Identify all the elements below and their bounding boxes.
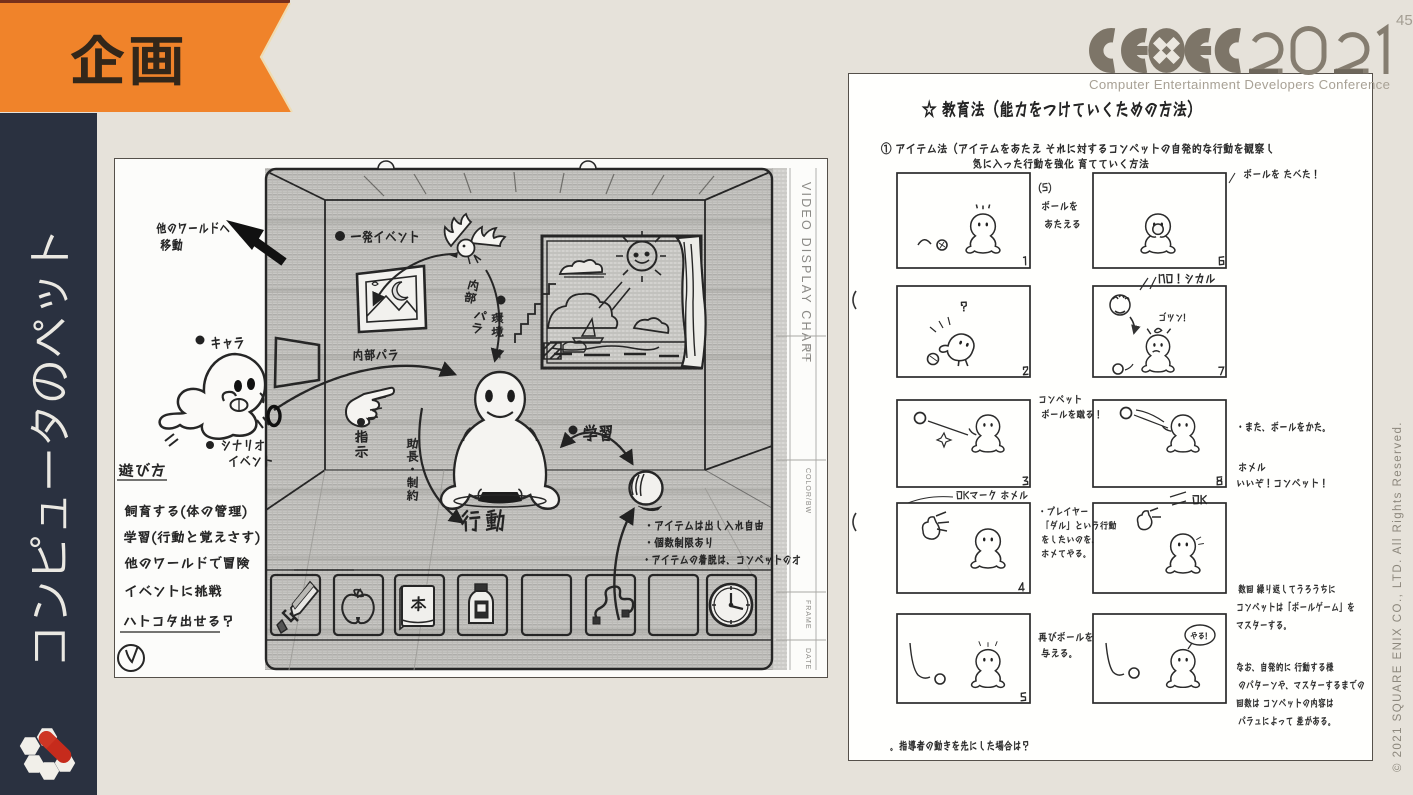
svg-text:VIDEO DISPLAY CHART: VIDEO DISPLAY CHART [799, 182, 813, 364]
svg-text:FRAME: FRAME [804, 600, 811, 630]
svg-text:HILL: HILL [804, 344, 811, 363]
svg-text:45: 45 [1396, 12, 1413, 29]
svg-text:COLOR/BW: COLOR/BW [804, 468, 811, 514]
svg-text:DATE: DATE [804, 648, 811, 670]
svg-text:Computer Entertainment Develop: Computer Entertainment Developers Confer… [1089, 77, 1390, 92]
